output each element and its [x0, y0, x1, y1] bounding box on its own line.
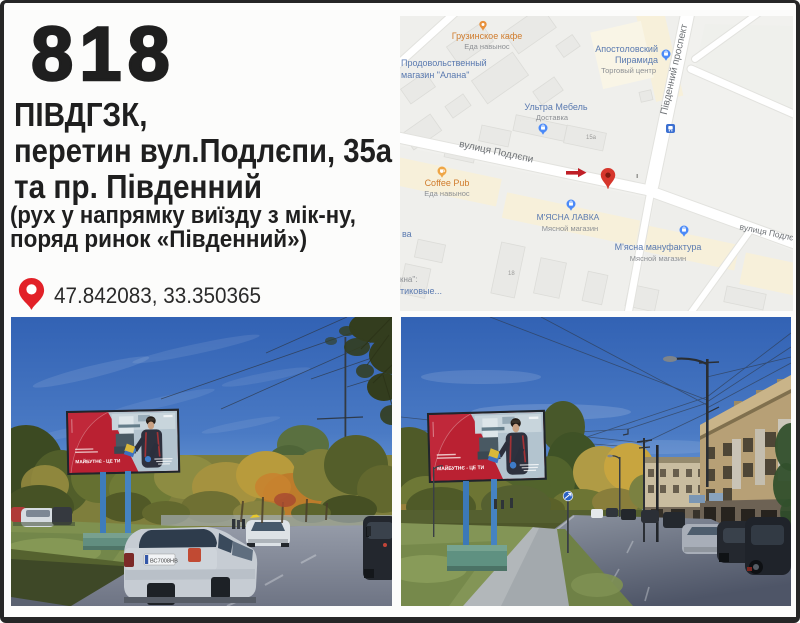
- svg-text:Мясной магазин: Мясной магазин: [630, 254, 686, 263]
- svg-text:Продовольственный: Продовольственный: [401, 58, 487, 68]
- svg-text:Торговый центр: Торговый центр: [601, 66, 656, 75]
- svg-text:Грузинское кафе: Грузинское кафе: [452, 31, 523, 41]
- svg-text:кна":: кна":: [400, 275, 417, 284]
- svg-text:ВС7008НВ: ВС7008НВ: [150, 559, 178, 565]
- svg-text:тиковые...: тиковые...: [400, 286, 442, 296]
- svg-text:М'ясна мануфактура: М'ясна мануфактура: [615, 242, 702, 252]
- svg-text:15а: 15а: [586, 135, 597, 141]
- svg-text:Апостоловский: Апостоловский: [595, 44, 658, 54]
- svg-text:ва: ва: [402, 229, 412, 239]
- svg-text:Мясной магазин: Мясной магазин: [542, 224, 598, 233]
- svg-text:Доставка: Доставка: [536, 113, 569, 122]
- svg-text:18: 18: [508, 271, 515, 277]
- svg-text:магазин "Алана": магазин "Алана": [401, 70, 469, 80]
- svg-text:М'ЯСНА ЛАВКА: М'ЯСНА ЛАВКА: [537, 212, 600, 222]
- svg-text:Ультра Мебель: Ультра Мебель: [524, 102, 588, 112]
- svg-text:Еда навынос: Еда навынос: [424, 189, 470, 198]
- svg-text:Еда навынос: Еда навынос: [464, 42, 510, 51]
- svg-text:Пирамида: Пирамида: [615, 55, 658, 65]
- svg-text:Coffee Pub: Coffee Pub: [425, 178, 470, 188]
